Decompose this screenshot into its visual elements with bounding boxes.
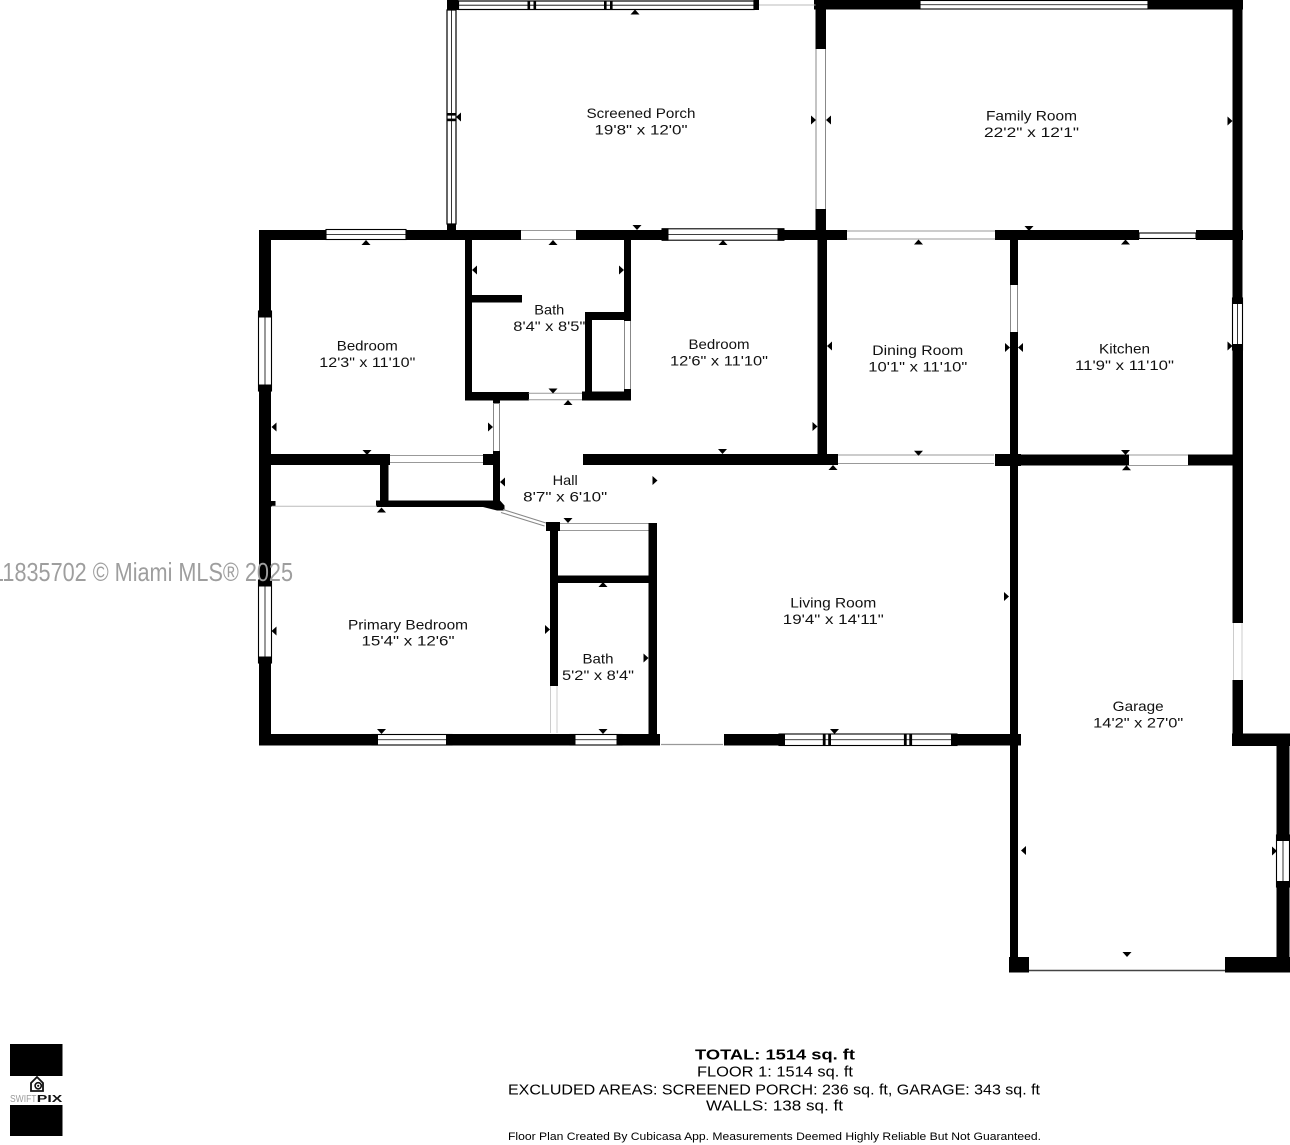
svg-text:Bedroom: Bedroom [689, 336, 750, 352]
svg-text:Bath: Bath [583, 651, 614, 667]
svg-text:Garage: Garage [1113, 698, 1164, 714]
svg-text:Primary Bedroom: Primary Bedroom [348, 616, 468, 632]
svg-text:11'9" x 11'10": 11'9" x 11'10" [1075, 357, 1174, 373]
svg-text:Floor Plan Created By Cubicasa: Floor Plan Created By Cubicasa App. Meas… [508, 1131, 1041, 1143]
svg-text:15'4" x 12'6": 15'4" x 12'6" [362, 633, 455, 649]
svg-text:Hall: Hall [553, 472, 578, 488]
svg-text:Bath: Bath [534, 302, 564, 318]
svg-text:8'4" x 8'5": 8'4" x 8'5" [513, 318, 585, 334]
svg-text:14'2" x 27'0": 14'2" x 27'0" [1093, 715, 1183, 731]
svg-text:19'8" x 12'0": 19'8" x 12'0" [595, 121, 688, 137]
svg-text:EXCLUDED AREAS: SCREENED PORCH: EXCLUDED AREAS: SCREENED PORCH: 236 sq. … [508, 1083, 1040, 1099]
svg-text:SWIFT: SWIFT [10, 1093, 37, 1105]
svg-text:19'4" x 14'11": 19'4" x 14'11" [783, 611, 884, 627]
svg-text:12'6" x 11'10": 12'6" x 11'10" [670, 352, 768, 368]
svg-text:FLOOR 1: 1514 sq. ft: FLOOR 1: 1514 sq. ft [697, 1065, 853, 1081]
svg-text:5'2" x 8'4": 5'2" x 8'4" [562, 667, 634, 683]
svg-text:Living Room: Living Room [790, 595, 876, 611]
svg-text:TOTAL: 1514 sq. ft: TOTAL: 1514 sq. ft [695, 1048, 855, 1064]
svg-text:10'1" x 11'10": 10'1" x 11'10" [868, 358, 967, 374]
svg-text:Family Room: Family Room [986, 108, 1077, 124]
svg-text:11835702 © Miami MLS® 2025: 11835702 © Miami MLS® 2025 [0, 557, 293, 587]
svg-text:8'7" x 6'10": 8'7" x 6'10" [523, 488, 607, 504]
svg-text:Screened Porch: Screened Porch [587, 105, 696, 121]
svg-text:Kitchen: Kitchen [1099, 341, 1150, 357]
svg-text:22'2" x 12'1": 22'2" x 12'1" [984, 124, 1079, 140]
svg-text:PIX: PIX [37, 1093, 63, 1105]
svg-text:WALLS: 138 sq. ft: WALLS: 138 sq. ft [706, 1099, 843, 1115]
svg-text:Bedroom: Bedroom [337, 337, 398, 353]
svg-text:12'3" x 11'10": 12'3" x 11'10" [319, 354, 415, 370]
svg-text:Dining Room: Dining Room [872, 342, 963, 358]
